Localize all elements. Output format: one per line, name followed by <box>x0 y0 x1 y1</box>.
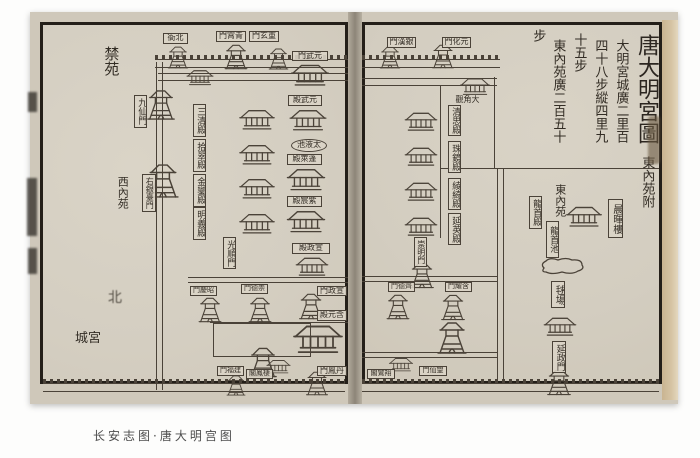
label-lingqi-hall: 綾綺殿 <box>448 178 461 210</box>
label-beiya: 衙北 <box>163 33 188 44</box>
spine-text-fragment-1 <box>28 92 37 112</box>
label-jinluan-hall: 金鑾殿 <box>193 174 206 207</box>
east-hall-2 <box>403 145 439 168</box>
measure-col-3: 十五步 <box>570 26 587 78</box>
label-shicui-hall: 拾翠殿 <box>193 139 206 172</box>
inner-north-hall <box>186 68 214 87</box>
label-hanyuan-hall: 殿元含 <box>317 310 347 321</box>
xuanzheng-hall-bldg <box>290 255 334 278</box>
caption: 长安志图·唐大明宫图 <box>93 427 235 444</box>
label-youyintai-gate: 右銀臺門 <box>142 174 156 212</box>
west-hall-3 <box>237 176 277 201</box>
east-hall-3 <box>403 180 439 203</box>
text-block-left-line <box>494 77 496 169</box>
label-yuanhua-gate: 門化元 <box>442 37 471 48</box>
book-spread: 衙北門霄青門玄重門武元殿武元池液太殿萊蓬殿宸紫殿政宣門政宣殿元含門鳳丹門福建閣鳳… <box>30 12 678 404</box>
label-hanyao-gate: 門耀含 <box>445 282 472 292</box>
north-gate-tower-1 <box>165 45 191 70</box>
label-guangshun-gate: 光順門 <box>223 237 236 269</box>
penglai-hall-bldg <box>283 166 329 193</box>
garden-hall <box>566 203 602 230</box>
label-zichen-hall: 殿宸紫 <box>287 196 322 207</box>
west-hall-1 <box>237 107 277 132</box>
yuanwu-hall-bldg <box>288 107 328 133</box>
lower-wall-right <box>362 352 497 358</box>
xuanwu-gate-hall <box>291 61 329 89</box>
label-zhujing-hall: 珠鏡殿 <box>448 141 461 173</box>
label-yuanwu-gate: 門武元 <box>292 51 328 61</box>
zichen-hall-bldg <box>283 208 329 235</box>
spine-text-fragment-2 <box>27 178 37 236</box>
label-chongxuan-gate: 門玄重 <box>249 31 279 42</box>
west-hall-4 <box>237 211 277 236</box>
label-xineiyuan: 西內苑 <box>116 170 129 214</box>
label-yinhan-gate: 門漢銀 <box>387 37 416 48</box>
measure-col-5: 步 <box>529 26 546 44</box>
label-penglai-hall: 殿萊蓬 <box>287 154 322 165</box>
qiuchang-hall <box>542 315 578 338</box>
measure-col-2: 四十八步縱四里九 <box>591 26 608 156</box>
label-dajiao-temple: 觀角大 <box>453 95 482 105</box>
measure-col-4: 東內苑廣二百五十 <box>549 26 566 156</box>
label-dongneiyuan: 東內苑 <box>553 181 567 219</box>
south-wall-right <box>362 383 659 392</box>
label-qingxiao-gate: 門霄青 <box>216 31 246 42</box>
east-hall-4 <box>403 215 439 238</box>
label-xuanzheng-gate: 門政宣 <box>317 286 347 296</box>
hanyuan-hall-bldg <box>293 321 343 357</box>
spine-text-fragment-3 <box>28 248 37 274</box>
label-gongcheng: 城宮 <box>71 331 105 347</box>
label-danfeng-gate: 門鳳丹 <box>317 366 347 376</box>
scanned-book-photo: 衙北門霄青門玄重門武元殿武元池液太殿萊蓬殿宸紫殿政宣門政宣殿元含門鳳丹門福建閣鳳… <box>0 0 700 458</box>
west-hall-2 <box>237 142 277 167</box>
label-qide-gate: 門德齊 <box>388 282 415 292</box>
palace-east-wall <box>497 169 504 381</box>
longshou-pond <box>537 256 587 276</box>
label-xuanzheng-hall: 殿政宣 <box>292 243 330 254</box>
label-jinyuan: 禁苑 <box>101 41 120 81</box>
jiuxian-gate-tower <box>146 86 176 124</box>
measure-col-1: 大明宮城廣二里百 <box>612 26 629 156</box>
right-inner-hall <box>458 76 492 97</box>
north-gate-tower-2 <box>222 43 250 71</box>
label-xiangluan-pavilion: 閣鸞翔 <box>367 369 395 379</box>
east-column-wall <box>440 86 442 238</box>
label-jiuxian-gate: 九仙門 <box>134 95 147 128</box>
north-ink-mark: 北 <box>108 287 122 315</box>
label-qingsi-hall: 清思殿 <box>448 105 461 136</box>
label-zhaoqing-gate: 門慶昭 <box>190 286 217 296</box>
label-longshou-pool: 龍首池 <box>546 221 559 258</box>
label-wangxian-gate: 門仙望 <box>419 366 447 376</box>
label-jianfu-gate: 門福建 <box>217 366 244 376</box>
label-chenhui-tower: 晨暉樓 <box>608 199 623 238</box>
label-chongde-gate: 門德崇 <box>241 284 268 294</box>
label-chongming-gate: 崇明門 <box>414 237 427 267</box>
label-mingyi-hall: 明義殿 <box>193 207 206 240</box>
page-edge-stain <box>648 116 660 164</box>
label-yanzheng-gate: 延政門 <box>552 341 566 373</box>
zhaoqing-tower <box>196 296 224 324</box>
qide-tower <box>384 293 412 321</box>
label-taiye-pool: 池液太 <box>291 139 327 152</box>
label-qiuchang: 毬場 <box>551 281 565 308</box>
wangxian-tower <box>436 316 468 360</box>
label-sanqing-hall: 三清殿 <box>193 104 206 137</box>
east-hall-1 <box>403 110 439 133</box>
label-yanying-hall: 延英殿 <box>448 213 461 245</box>
map-drawing-layer: 衙北門霄青門玄重門武元殿武元池液太殿萊蓬殿宸紫殿政宣門政宣殿元含門鳳丹門福建閣鳳… <box>30 12 678 404</box>
label-qifeng-pavilion: 閣鳳棲 <box>246 369 273 379</box>
label-yuanwu-hall: 殿武元 <box>288 95 322 106</box>
chongde-tower <box>246 296 274 324</box>
text-block-bottom-line <box>440 168 659 170</box>
yinhan-tower <box>375 45 405 70</box>
label-longshou-hall: 龍首殿 <box>529 196 542 229</box>
north-gate-tower-3 <box>266 47 291 71</box>
